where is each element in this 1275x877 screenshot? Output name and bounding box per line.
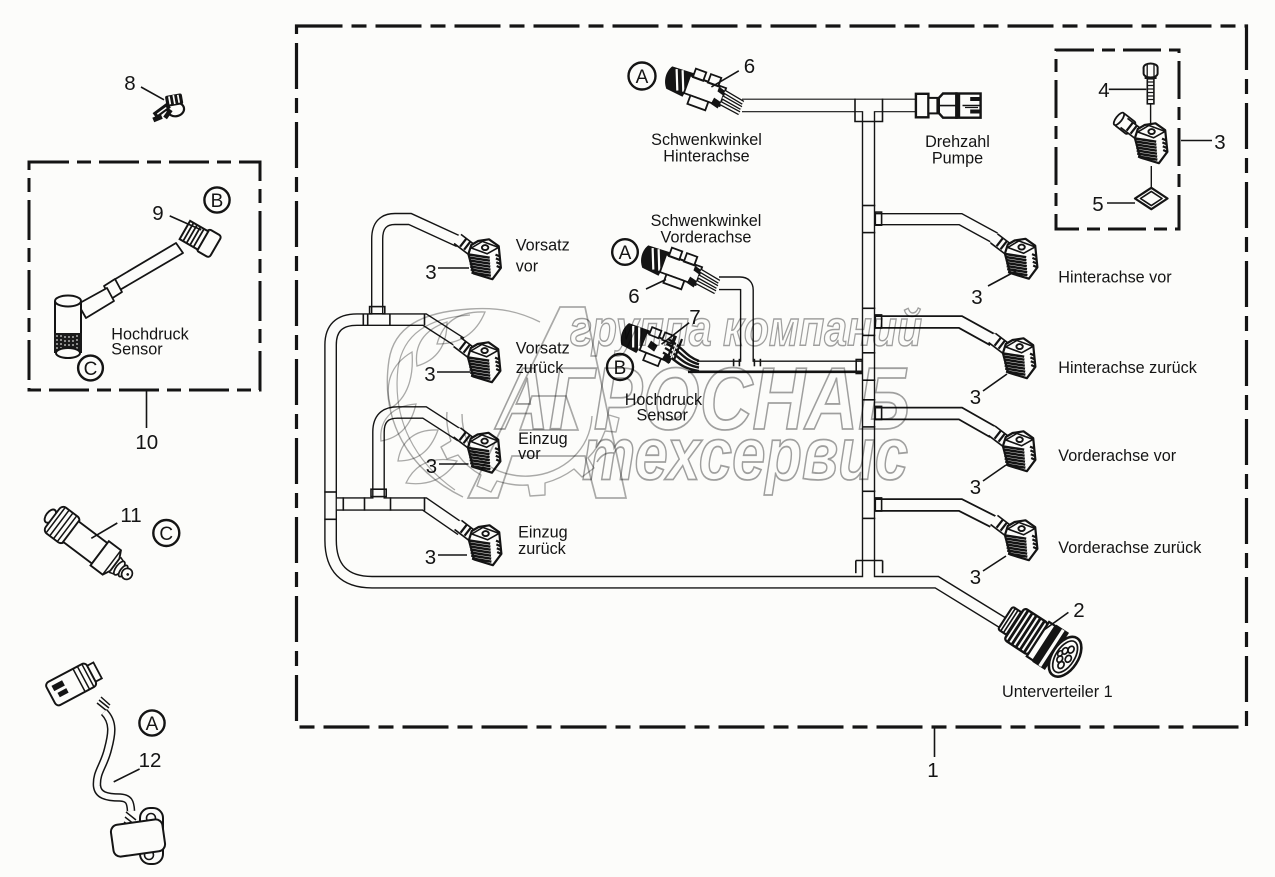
svg-text:2: 2	[1073, 599, 1084, 622]
svg-text:10: 10	[135, 431, 158, 454]
svg-text:Sensor: Sensor	[111, 341, 163, 359]
svg-text:Vorderachse vor: Vorderachse vor	[1058, 447, 1176, 465]
svg-text:Hinterachse vor: Hinterachse vor	[1058, 269, 1172, 287]
svg-text:zurück: zurück	[518, 540, 567, 558]
svg-text:8: 8	[124, 72, 135, 95]
svg-text:1: 1	[927, 759, 938, 782]
svg-text:Pumpe: Pumpe	[932, 150, 983, 168]
svg-text:3: 3	[971, 286, 982, 309]
svg-text:3: 3	[424, 363, 435, 386]
svg-text:Vorsatz: Vorsatz	[516, 237, 570, 255]
svg-text:C: C	[159, 524, 173, 545]
svg-text:12: 12	[139, 749, 162, 772]
svg-text:Schwenkwinkel: Schwenkwinkel	[651, 131, 762, 149]
svg-text:B: B	[211, 191, 224, 212]
svg-text:5: 5	[1092, 193, 1103, 216]
svg-text:Vorderachse: Vorderachse	[661, 229, 752, 247]
svg-text:Unterverteiler 1: Unterverteiler 1	[1002, 683, 1113, 701]
svg-text:6: 6	[744, 55, 755, 78]
svg-text:Einzug: Einzug	[518, 524, 568, 542]
svg-text:A: A	[619, 243, 632, 264]
svg-text:4: 4	[1098, 79, 1109, 102]
svg-text:3: 3	[970, 386, 981, 409]
svg-text:Vorderachse zurück: Vorderachse zurück	[1058, 539, 1202, 557]
svg-text:Hinterachse zurück: Hinterachse zurück	[1058, 359, 1197, 377]
svg-text:A: A	[636, 67, 649, 88]
svg-text:Schwenkwinkel: Schwenkwinkel	[651, 212, 762, 230]
svg-text:3: 3	[970, 476, 981, 499]
svg-text:Hinterachse: Hinterachse	[663, 148, 749, 166]
svg-text:3: 3	[1214, 131, 1225, 154]
svg-text:3: 3	[425, 546, 436, 569]
svg-text:A: A	[146, 714, 159, 735]
svg-text:9: 9	[152, 202, 163, 225]
svg-text:vor: vor	[516, 258, 539, 276]
svg-text:Drehzahl: Drehzahl	[925, 133, 990, 151]
svg-text:3: 3	[970, 566, 981, 589]
svg-text:техсервис: техсервис	[582, 413, 908, 496]
svg-text:11: 11	[120, 504, 141, 527]
svg-text:C: C	[84, 359, 98, 380]
svg-text:3: 3	[425, 261, 436, 284]
